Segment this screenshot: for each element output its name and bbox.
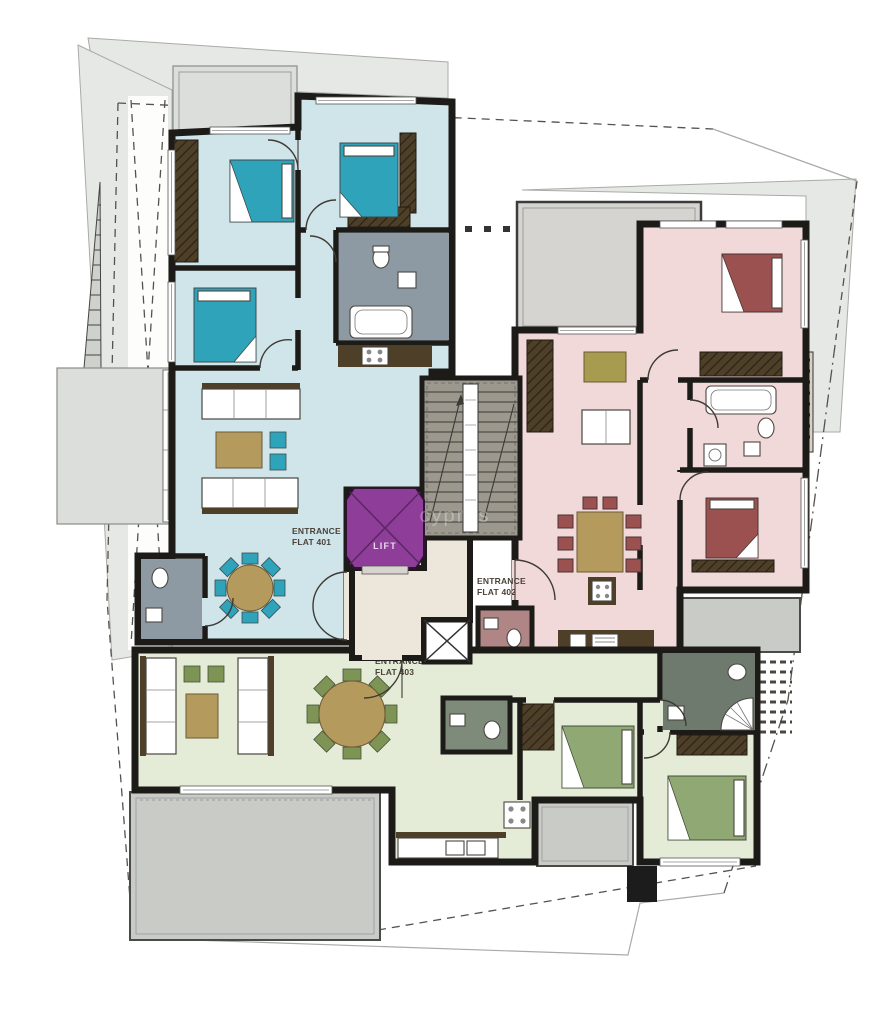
sink-icon bbox=[450, 714, 465, 726]
entrance-label-line1: ENTRANCE bbox=[292, 526, 341, 536]
entrance-label-line2: FLAT 401 bbox=[292, 537, 331, 547]
sink-icon bbox=[398, 272, 416, 288]
floor-plan-svg: ENTRANCE FLAT 401 bbox=[0, 0, 895, 1024]
double-bed bbox=[194, 288, 256, 362]
toilet-icon bbox=[152, 568, 168, 588]
floor-plan-canvas: ENTRANCE FLAT 401 bbox=[0, 0, 895, 1024]
terrace-west bbox=[57, 368, 173, 524]
flat-401-bathroom bbox=[339, 233, 449, 340]
entrance-pillar bbox=[627, 866, 657, 902]
double-bed bbox=[230, 160, 294, 222]
kitchen-sink-icon bbox=[467, 841, 485, 855]
flat-401-living-furniture bbox=[202, 383, 300, 623]
flat-401-wc bbox=[141, 559, 202, 639]
stove-icon bbox=[362, 347, 388, 365]
watermark-text: cyprus bbox=[420, 505, 491, 527]
entrance-label-line2: FLAT 402 bbox=[477, 587, 516, 597]
double-bed bbox=[722, 254, 782, 312]
kitchen-island bbox=[588, 577, 616, 605]
wardrobe bbox=[522, 704, 554, 750]
double-bed bbox=[706, 498, 758, 558]
sofa bbox=[202, 389, 300, 419]
pergola-hatch-southeast bbox=[760, 662, 792, 732]
wardrobe bbox=[174, 140, 198, 262]
double-bed bbox=[668, 776, 746, 840]
stove-icon bbox=[592, 581, 612, 601]
coffee-table bbox=[216, 432, 262, 468]
wardrobe bbox=[700, 352, 782, 376]
terrace-east bbox=[668, 598, 800, 652]
mat-well bbox=[424, 620, 470, 662]
double-bed bbox=[340, 143, 398, 217]
entrance-label-line2: FLAT 403 bbox=[375, 667, 414, 677]
appliance-icon bbox=[592, 634, 618, 647]
wardrobe bbox=[527, 340, 553, 432]
coffee-table bbox=[584, 352, 626, 382]
lift-door bbox=[362, 566, 408, 574]
sink-icon bbox=[744, 442, 760, 456]
round-dining-table bbox=[215, 553, 285, 623]
toilet-icon bbox=[758, 418, 774, 438]
sofa bbox=[202, 478, 298, 508]
stove-icon bbox=[504, 802, 530, 828]
toilet-icon bbox=[507, 629, 521, 647]
sink-icon bbox=[146, 608, 162, 622]
round-dining-table bbox=[307, 669, 397, 759]
wardrobe bbox=[400, 133, 416, 213]
terrace-bottom-center bbox=[537, 802, 633, 866]
terrace-bottom-left bbox=[130, 792, 380, 940]
site-top-right-edge bbox=[713, 129, 857, 181]
wardrobe bbox=[677, 735, 747, 755]
toilet-icon bbox=[728, 664, 746, 680]
lift-label: LIFT bbox=[373, 541, 397, 551]
boundary-bottom-diagonal bbox=[378, 866, 756, 930]
bed-bench bbox=[692, 560, 774, 572]
coffee-table bbox=[186, 694, 218, 738]
flat-403-bathroom bbox=[663, 653, 755, 730]
flat-403-wc bbox=[443, 698, 510, 752]
double-bed bbox=[562, 726, 634, 788]
sofa bbox=[238, 658, 268, 754]
sofa bbox=[146, 658, 176, 754]
sink-icon bbox=[484, 618, 498, 629]
toilet-icon bbox=[484, 721, 500, 739]
kitchen-sink-icon bbox=[570, 634, 586, 647]
kitchen-sink-icon bbox=[446, 841, 464, 855]
sink-icon bbox=[668, 706, 684, 720]
lift: LIFT bbox=[346, 488, 424, 574]
flat-401-kitchen bbox=[338, 345, 432, 367]
entrance-label-line1: ENTRANCE bbox=[477, 576, 526, 586]
washing-machine-icon bbox=[704, 444, 726, 466]
